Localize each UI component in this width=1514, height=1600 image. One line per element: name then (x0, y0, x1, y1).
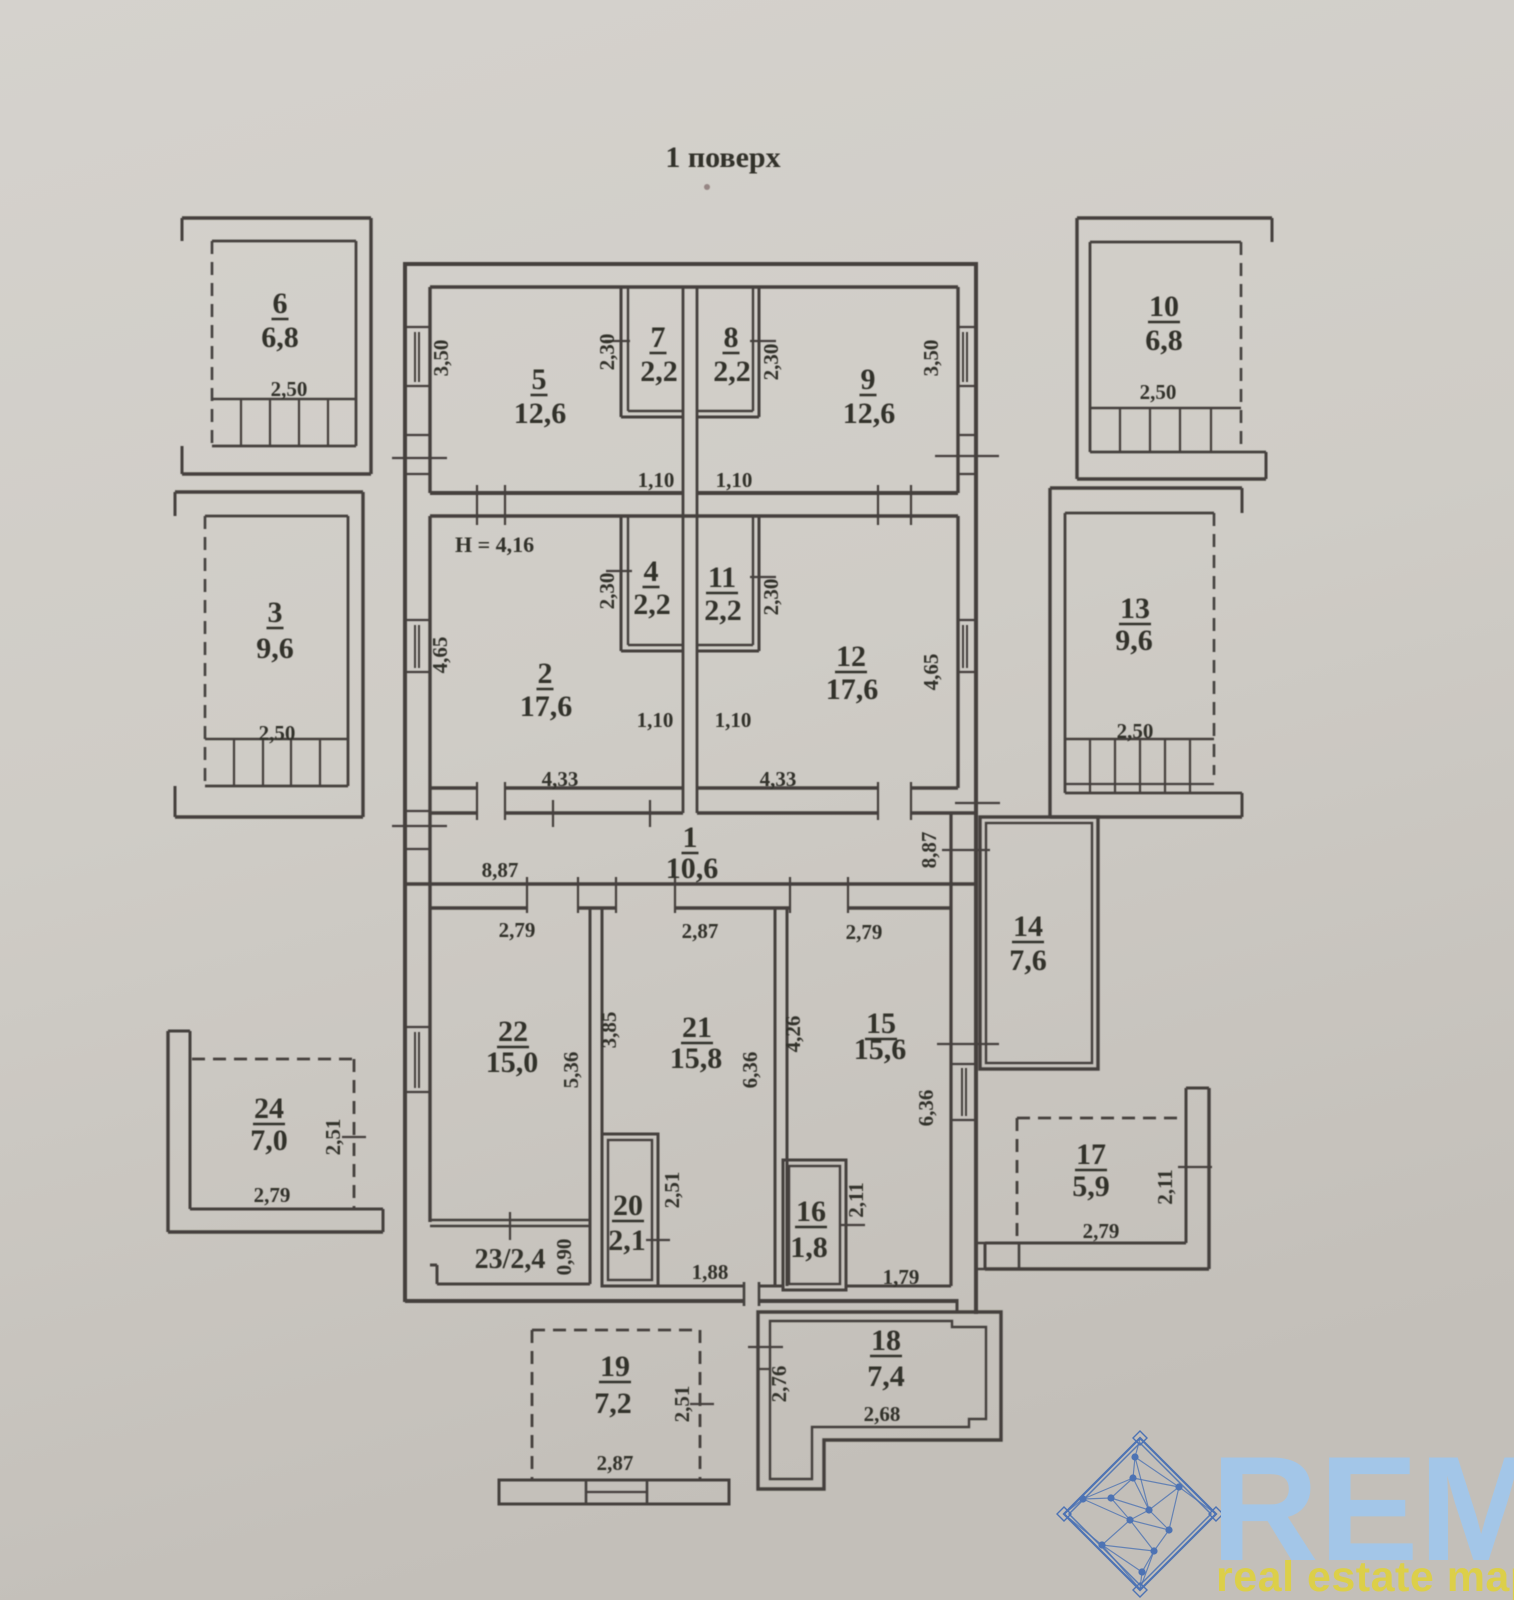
svg-text:7,4: 7,4 (867, 1360, 905, 1393)
svg-text:15,6: 15,6 (854, 1033, 907, 1066)
svg-text:7,2: 7,2 (594, 1387, 632, 1420)
svg-text:7: 7 (651, 321, 666, 354)
svg-text:6,36: 6,36 (738, 1052, 762, 1089)
svg-text:7,0: 7,0 (250, 1124, 288, 1157)
svg-text:7,6: 7,6 (1009, 944, 1047, 977)
svg-text:18: 18 (871, 1324, 901, 1357)
svg-text:2,79: 2,79 (846, 920, 883, 944)
svg-text:19: 19 (600, 1350, 630, 1383)
svg-text:8: 8 (724, 321, 739, 354)
svg-text:2,2: 2,2 (704, 594, 742, 627)
svg-text:17,6: 17,6 (520, 690, 573, 723)
svg-text:0,90: 0,90 (552, 1239, 576, 1276)
svg-text:4,65: 4,65 (428, 637, 452, 674)
svg-text:3,50: 3,50 (429, 340, 453, 377)
svg-text:16: 16 (796, 1195, 826, 1228)
svg-text:9,6: 9,6 (1115, 624, 1153, 657)
svg-text:2,30: 2,30 (595, 573, 619, 610)
svg-text:4,33: 4,33 (542, 767, 579, 791)
svg-text:2,79: 2,79 (499, 918, 536, 942)
svg-text:2,51: 2,51 (670, 1386, 694, 1423)
svg-text:1,10: 1,10 (716, 468, 753, 492)
svg-text:1: 1 (683, 821, 698, 854)
svg-text:2,50: 2,50 (271, 377, 308, 401)
svg-text:2,51: 2,51 (660, 1172, 684, 1209)
svg-text:6: 6 (273, 287, 288, 320)
svg-text:1,10: 1,10 (715, 708, 752, 732)
svg-text:2,87: 2,87 (682, 919, 719, 943)
svg-text:3,85: 3,85 (597, 1012, 621, 1049)
svg-text:6,8: 6,8 (261, 321, 299, 354)
svg-text:5,9: 5,9 (1072, 1170, 1110, 1203)
svg-text:real estate map: real estate map (1216, 1553, 1514, 1600)
svg-text:1,79: 1,79 (883, 1265, 920, 1289)
svg-text:10: 10 (1149, 290, 1179, 323)
svg-text:15,8: 15,8 (670, 1042, 723, 1075)
svg-text:2,1: 2,1 (608, 1224, 646, 1257)
svg-text:6,36: 6,36 (914, 1090, 938, 1127)
svg-text:2,51: 2,51 (321, 1119, 345, 1156)
svg-text:13: 13 (1120, 592, 1150, 625)
svg-text:12,6: 12,6 (514, 397, 567, 430)
svg-text:2,68: 2,68 (864, 1402, 901, 1426)
svg-text:2,2: 2,2 (713, 355, 751, 388)
svg-text:1,10: 1,10 (638, 468, 675, 492)
svg-text:2,11: 2,11 (844, 1182, 868, 1218)
svg-text:2,76: 2,76 (767, 1366, 791, 1403)
svg-text:4,33: 4,33 (760, 767, 797, 791)
svg-text:15,0: 15,0 (486, 1046, 539, 1079)
svg-text:2: 2 (538, 657, 553, 690)
svg-text:22: 22 (498, 1015, 528, 1048)
svg-text:3: 3 (268, 596, 283, 629)
svg-text:H = 4,16: H = 4,16 (455, 532, 534, 557)
svg-text:2,30: 2,30 (595, 334, 619, 371)
svg-text:10,6: 10,6 (666, 852, 719, 885)
svg-text:2,30: 2,30 (759, 344, 783, 381)
svg-text:17,6: 17,6 (826, 673, 879, 706)
svg-text:11: 11 (708, 561, 736, 594)
svg-text:2,50: 2,50 (1140, 380, 1177, 404)
svg-text:2,30: 2,30 (759, 579, 783, 616)
svg-text:5,36: 5,36 (559, 1052, 583, 1089)
svg-text:4: 4 (644, 555, 659, 588)
svg-text:20: 20 (613, 1189, 643, 1222)
svg-text:12,6: 12,6 (843, 397, 896, 430)
svg-text:1,10: 1,10 (637, 708, 674, 732)
svg-text:24: 24 (254, 1092, 284, 1125)
svg-text:2,79: 2,79 (1083, 1219, 1120, 1243)
svg-text:2,2: 2,2 (633, 588, 671, 621)
svg-text:1,8: 1,8 (790, 1231, 828, 1264)
svg-text:2,50: 2,50 (1117, 719, 1154, 743)
svg-text:1 поверх: 1 поверх (665, 141, 780, 174)
svg-text:8,87: 8,87 (917, 832, 941, 869)
svg-text:8,87: 8,87 (482, 858, 519, 882)
svg-text:6,8: 6,8 (1145, 324, 1183, 357)
svg-text:1,88: 1,88 (692, 1260, 729, 1284)
svg-text:23/2,4: 23/2,4 (475, 1244, 546, 1275)
svg-text:4,26: 4,26 (781, 1016, 805, 1053)
svg-text:2,11: 2,11 (1153, 1169, 1177, 1205)
svg-text:3,50: 3,50 (919, 340, 943, 377)
svg-text:2,79: 2,79 (254, 1183, 291, 1207)
svg-text:12: 12 (836, 640, 866, 673)
svg-text:17: 17 (1076, 1138, 1106, 1171)
svg-text:2,87: 2,87 (597, 1451, 634, 1475)
svg-text:2,2: 2,2 (640, 355, 678, 388)
svg-text:9,6: 9,6 (256, 632, 294, 665)
svg-text:14: 14 (1013, 910, 1043, 943)
svg-text:21: 21 (682, 1011, 712, 1044)
svg-text:9: 9 (861, 363, 876, 396)
svg-text:4,65: 4,65 (919, 654, 943, 691)
svg-text:5: 5 (532, 363, 547, 396)
svg-text:2,50: 2,50 (259, 721, 296, 745)
